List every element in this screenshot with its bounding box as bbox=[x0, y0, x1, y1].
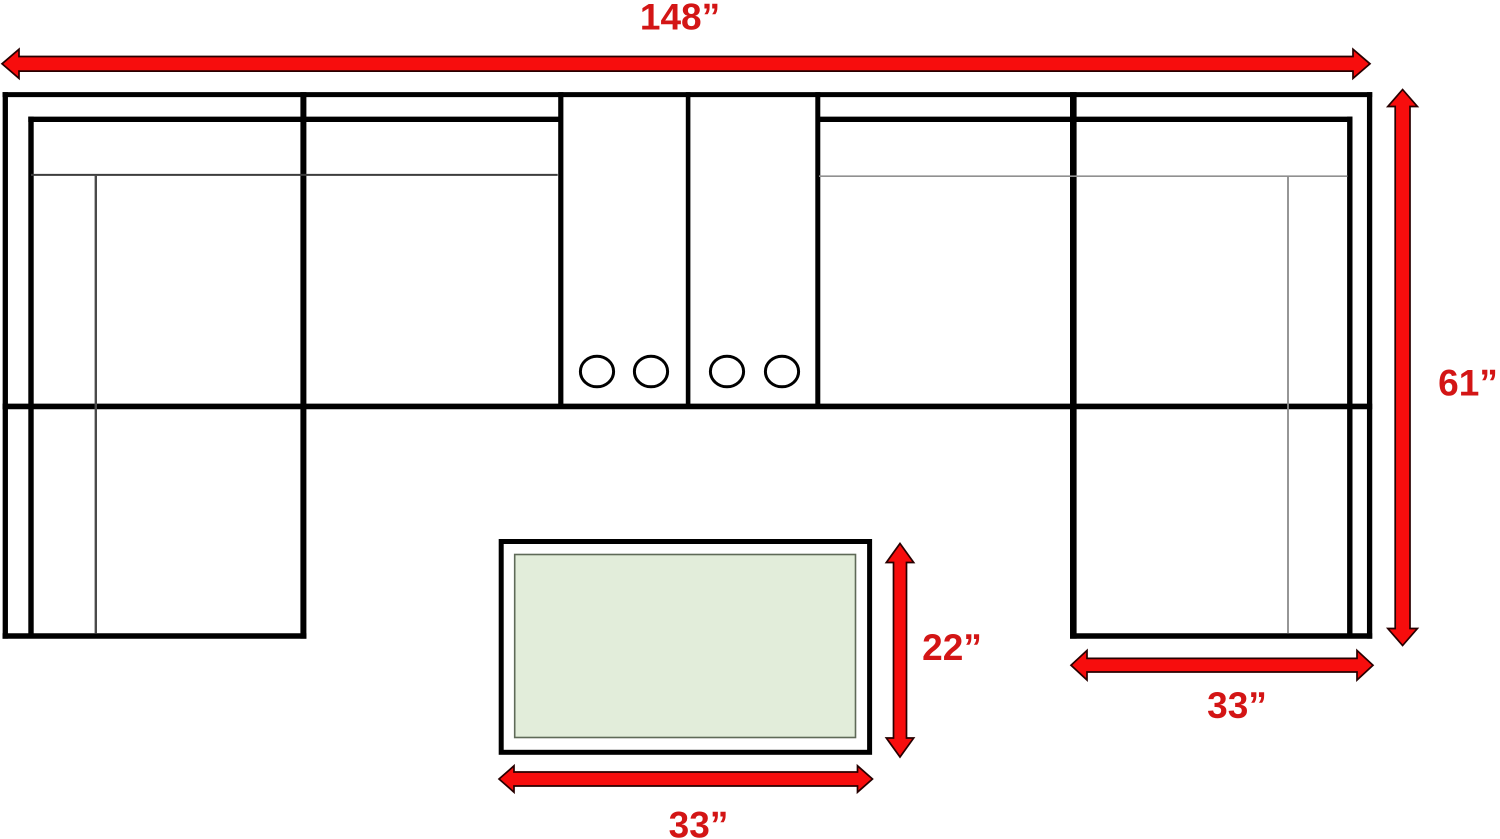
svg-text:33”: 33” bbox=[669, 805, 729, 839]
svg-text:22”: 22” bbox=[922, 627, 982, 668]
svg-text:33”: 33” bbox=[1207, 685, 1267, 726]
svg-text:61”: 61” bbox=[1438, 363, 1498, 404]
svg-text:148”: 148” bbox=[640, 0, 720, 38]
